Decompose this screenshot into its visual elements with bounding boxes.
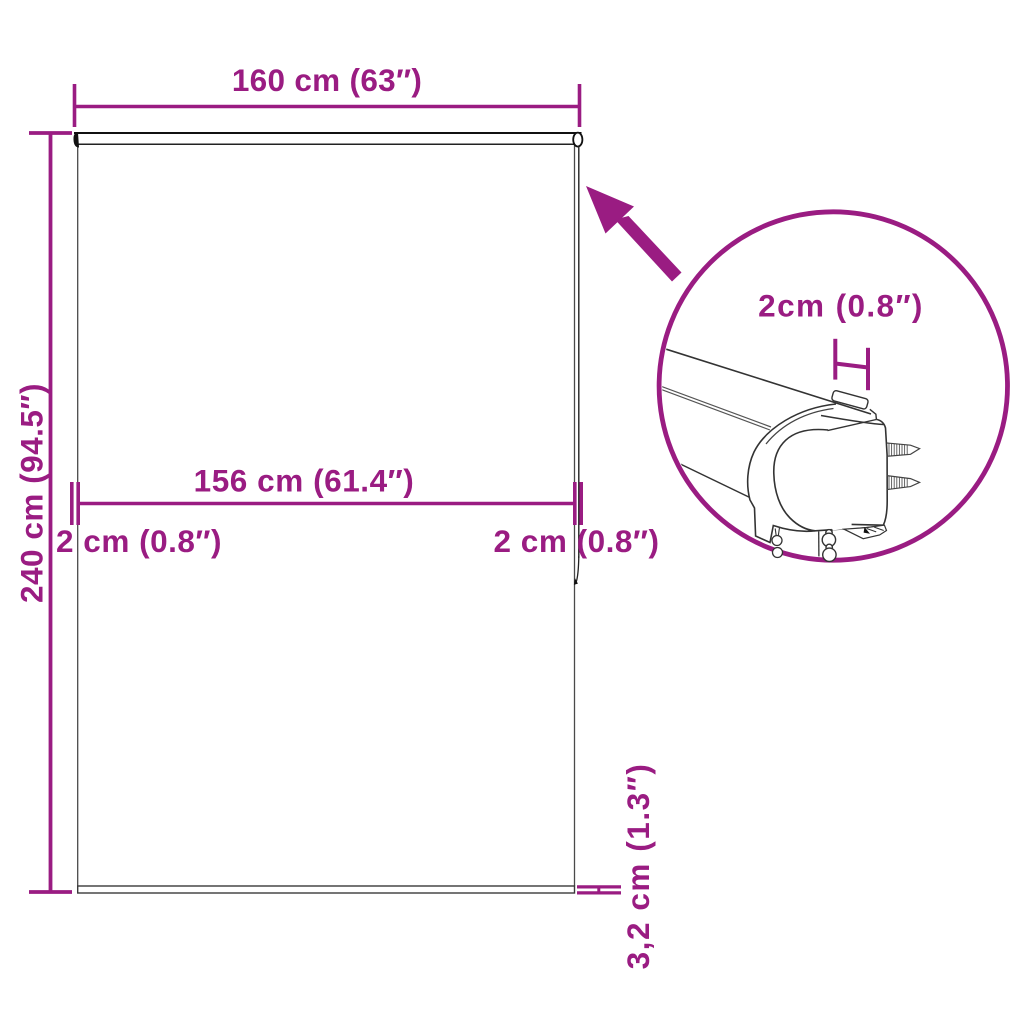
svg-text:160 cm (63″): 160 cm (63″) [232,62,422,98]
svg-text:2cm (0.8″): 2cm (0.8″) [758,288,924,324]
svg-text:156 cm (61.4″): 156 cm (61.4″) [194,463,415,499]
svg-text:2 cm (0.8″): 2 cm (0.8″) [56,523,222,559]
svg-text:240 cm (94.5″): 240 cm (94.5″) [14,383,50,603]
svg-text:2 cm (0.8″): 2 cm (0.8″) [494,523,660,559]
svg-text:3,2 cm (1.3″): 3,2 cm (1.3″) [620,763,656,970]
